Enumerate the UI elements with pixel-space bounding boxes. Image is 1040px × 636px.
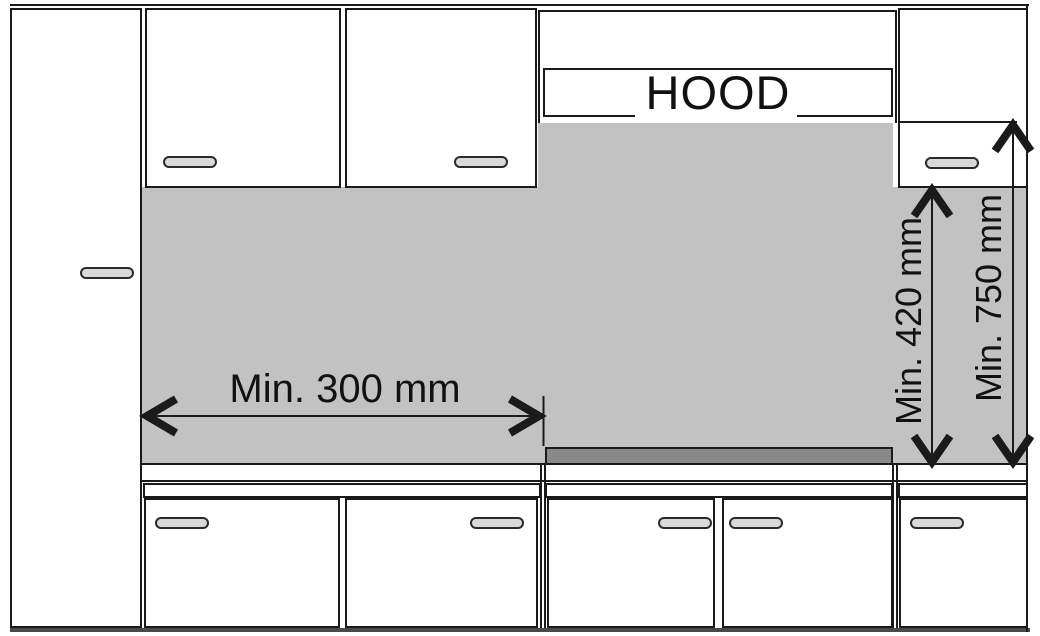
cabinet-handle — [925, 157, 979, 169]
cabinet-handle — [910, 517, 964, 529]
hood-label: HOOD — [646, 66, 791, 119]
kitchen-hood-clearance-diagram: HOOD — [0, 0, 1040, 636]
hood-bottom-edge — [797, 115, 893, 117]
floor-line — [10, 628, 1030, 632]
hob-strip — [545, 447, 893, 464]
section-divider-line — [896, 463, 898, 628]
section-divider-line — [540, 463, 542, 628]
dim-label-300: Min. 300 mm — [205, 369, 485, 409]
wall-cabinet-right — [898, 8, 1028, 188]
base-door-5 — [899, 498, 1028, 628]
dim-label-750: Min. 750 mm — [971, 194, 1007, 402]
base-door-3 — [547, 498, 715, 628]
cabinet-handle — [155, 517, 209, 529]
cabinet-handle — [729, 517, 783, 529]
tall-cabinet — [10, 8, 142, 628]
section-divider-line — [544, 463, 546, 628]
wall-cabinet-center — [345, 8, 537, 188]
cabinet-handle — [163, 156, 217, 168]
right-wall-line — [1026, 4, 1028, 632]
hood-level-reference-line — [900, 121, 1017, 123]
base-rail-right — [898, 483, 1028, 498]
hood-box: HOOD — [543, 68, 893, 117]
wall-cabinet-left — [145, 8, 341, 188]
base-rail-center — [545, 483, 893, 498]
hood-bottom-edge — [545, 115, 635, 117]
base-door-2 — [345, 498, 538, 628]
cabinet-handle — [80, 267, 134, 279]
base-door-1 — [144, 498, 340, 628]
base-rail-left — [143, 483, 541, 498]
ceiling-line — [10, 4, 1029, 6]
wall-surface-under-hood — [538, 123, 893, 187]
dim-label-420: Min. 420 mm — [891, 217, 927, 425]
cabinet-handle — [658, 517, 712, 529]
cabinet-handle — [470, 517, 524, 529]
base-door-4 — [722, 498, 893, 628]
cabinet-handle — [454, 156, 508, 168]
